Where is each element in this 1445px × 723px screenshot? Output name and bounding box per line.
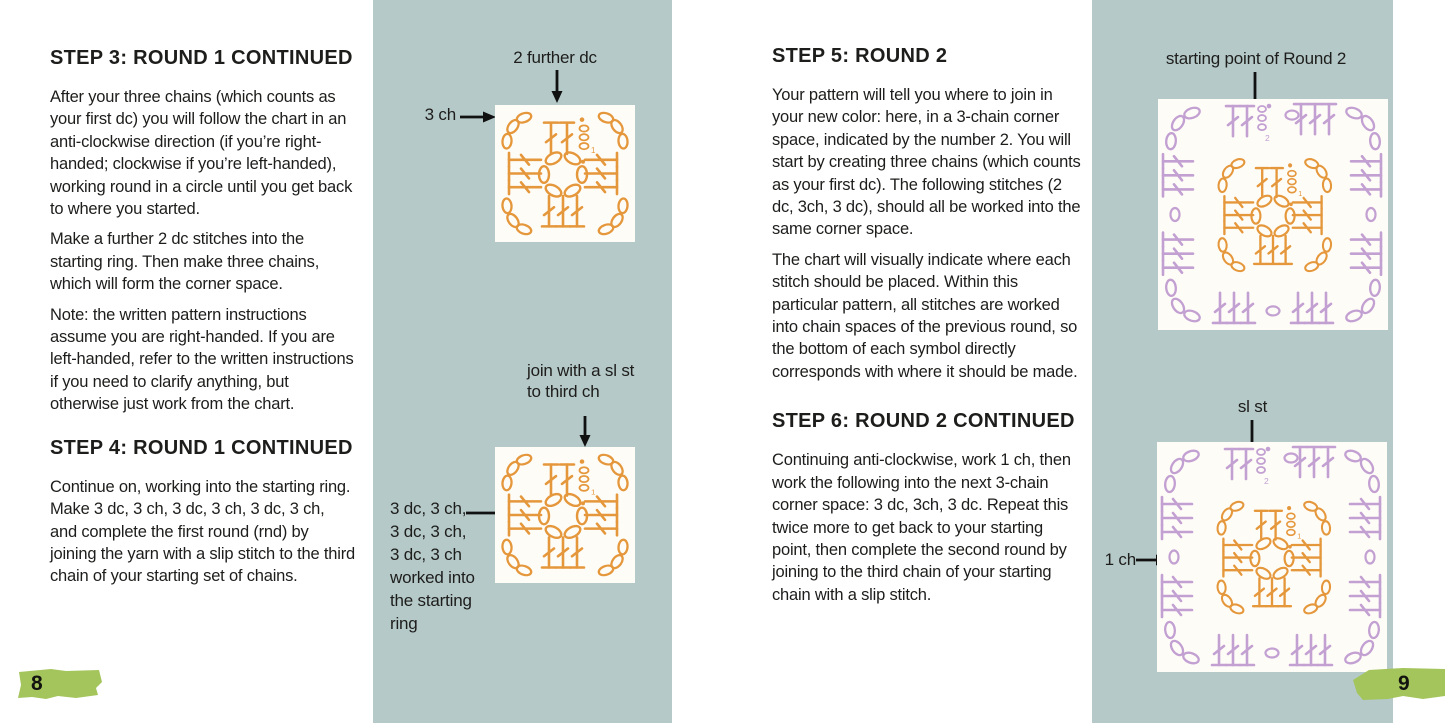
arrow-down-icon <box>577 416 593 447</box>
figure1-caption-top: 2 further dc <box>470 47 640 68</box>
step-3-paragraph: After your three chains (which counts as… <box>50 86 355 220</box>
book-spread: STEP 3: ROUND 1 CONTINUED After your thr… <box>0 0 1445 723</box>
arrow-right-icon <box>460 109 496 125</box>
crochet-chart-round-2-start: 12 <box>1158 99 1388 330</box>
svg-text:1: 1 <box>591 488 595 497</box>
figure3-caption-top: starting point of Round 2 <box>1136 48 1376 69</box>
page-9-badge <box>1343 665 1445 705</box>
crochet-chart-round-2-complete: 12 <box>1157 442 1387 672</box>
svg-text:1: 1 <box>591 146 596 155</box>
step-3-heading: STEP 3: ROUND 1 CONTINUED <box>50 46 355 70</box>
figure4-caption-top: sl st <box>1215 396 1290 417</box>
page-8-badge <box>6 665 106 705</box>
step-6-heading: STEP 6: ROUND 2 CONTINUED <box>772 409 1084 433</box>
page-number-left: 8 <box>31 672 43 696</box>
arrow-down-icon <box>549 70 565 103</box>
step-5-heading: STEP 5: ROUND 2 <box>772 44 1084 68</box>
step-5-paragraph: Your pattern will tell you where to join… <box>772 84 1084 241</box>
crochet-chart-round-1-complete: 1 <box>495 447 635 583</box>
svg-text:2: 2 <box>1265 133 1270 143</box>
step-6-paragraph: Continuing anti-clockwise, work 1 ch, th… <box>772 449 1084 606</box>
step-3-paragraph: Make a further 2 dc stitches into the st… <box>50 228 355 295</box>
svg-text:2: 2 <box>1264 476 1269 486</box>
svg-text:1: 1 <box>1298 189 1302 198</box>
step-3-note-paragraph: Note: the written pattern instructions a… <box>50 304 355 416</box>
step-4-heading: STEP 4: ROUND 1 CONTINUED <box>50 436 355 460</box>
figure1-caption-left: 3 ch <box>398 104 456 125</box>
step-5-paragraph: The chart will visually indicate where e… <box>772 249 1084 383</box>
figure4-caption-left: 1 ch <box>1094 549 1136 570</box>
figure2-caption-top: join with a sl st to third ch <box>527 360 657 402</box>
step-5-6-column: STEP 5: ROUND 2 Your pattern will tell y… <box>772 44 1084 614</box>
step-3-4-column: STEP 3: ROUND 1 CONTINUED After your thr… <box>50 46 355 596</box>
svg-text:1: 1 <box>1297 532 1301 541</box>
page-number-right: 9 <box>1398 672 1410 696</box>
crochet-chart-round-1-in-progress: 1 <box>495 105 635 242</box>
step-4-paragraph: Continue on, working into the starting r… <box>50 476 355 588</box>
